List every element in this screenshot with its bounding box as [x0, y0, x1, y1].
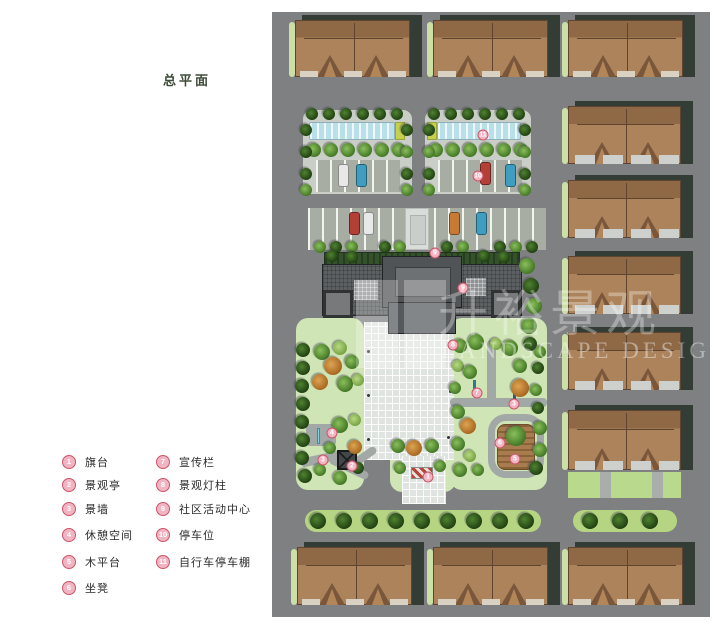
tree-icon — [336, 513, 352, 529]
house — [568, 106, 681, 164]
house-porch — [659, 461, 679, 470]
house-dormer — [501, 583, 527, 605]
legend-item: 6坐凳 — [62, 580, 109, 596]
tree-icon — [357, 108, 369, 120]
house-dormer — [319, 583, 345, 605]
house-porch — [390, 599, 408, 605]
tree-icon — [519, 184, 531, 196]
tree-icon — [324, 442, 336, 454]
house-porch — [346, 599, 364, 605]
legend-item-label: 坐凳 — [85, 580, 109, 596]
house-dormer — [590, 583, 616, 605]
house — [433, 20, 548, 77]
building-skylight — [466, 278, 486, 296]
house-porch — [631, 155, 651, 164]
house-dormer-facet — [366, 58, 386, 77]
tree-icon — [534, 346, 546, 358]
legend-item-label: 旗台 — [85, 454, 109, 470]
house-porch — [300, 71, 318, 77]
tree-icon — [460, 418, 476, 434]
tree-icon — [519, 168, 531, 180]
tree-icon — [449, 382, 461, 394]
house-dormer — [365, 583, 391, 605]
tree-icon — [423, 124, 435, 136]
tree-icon — [453, 463, 467, 477]
tree-icon — [358, 143, 372, 157]
tree-icon — [348, 440, 362, 454]
house-porch — [661, 71, 679, 77]
building-skylight — [354, 280, 378, 300]
house-porch — [438, 599, 456, 605]
tree-icon — [497, 143, 511, 157]
legend-item-label: 景观灯柱 — [179, 477, 227, 493]
legend-number-badge: 10 — [156, 528, 170, 542]
tree-icon — [324, 143, 338, 157]
tree-icon — [300, 168, 312, 180]
tree-icon — [519, 124, 531, 136]
tree-icon — [406, 440, 422, 456]
tree-icon — [478, 250, 490, 262]
tree-icon — [295, 379, 309, 393]
house-porch — [659, 229, 679, 238]
tree-icon — [296, 397, 310, 411]
tree-icon — [451, 405, 465, 419]
tree-icon — [446, 143, 460, 157]
tree-icon — [346, 251, 358, 263]
house-porch — [482, 599, 500, 605]
tree-icon — [388, 513, 404, 529]
house-porch — [603, 305, 623, 314]
tree-icon — [296, 433, 310, 447]
tree-icon — [529, 461, 543, 475]
house-ridge — [626, 183, 627, 237]
plan-marker-9: 9 — [458, 283, 469, 294]
plan-marker-9: 9 — [430, 248, 441, 259]
house-porch — [575, 155, 595, 164]
tree-icon — [519, 146, 531, 158]
car — [449, 212, 460, 235]
house-ridge — [626, 335, 627, 389]
legend-item: 3景墙 — [62, 501, 109, 517]
house-porch — [575, 305, 595, 314]
bicycle-shed — [309, 122, 395, 140]
house-dormer-facet — [320, 58, 340, 77]
tree-icon — [324, 357, 342, 375]
tree-icon — [533, 421, 547, 435]
page: 总平面 111099873465321 1旗台2景观亭3景墙4休憩空间5木平台6… — [0, 0, 720, 633]
tree-icon — [451, 437, 465, 451]
house-porch — [617, 71, 635, 77]
tree-icon — [513, 359, 527, 373]
plan-marker-8: 8 — [448, 340, 459, 351]
tree-icon — [464, 450, 476, 462]
house-dormer — [590, 55, 616, 77]
tree-icon — [612, 513, 628, 529]
legend-number-badge: 5 — [62, 555, 76, 569]
tree-icon — [296, 361, 310, 375]
entry-walkway — [405, 208, 429, 250]
plan-marker-6: 6 — [495, 438, 506, 449]
house-dormer-facet — [593, 58, 613, 77]
house — [568, 410, 681, 470]
tree-icon — [314, 464, 326, 476]
house — [295, 20, 410, 77]
legend-number-badge: 6 — [62, 581, 76, 595]
legend-item-label: 景观亭 — [85, 477, 121, 493]
tree-icon — [466, 513, 482, 529]
tree-icon — [300, 124, 312, 136]
house — [297, 547, 412, 605]
house-ridge — [626, 109, 627, 163]
house-porch — [603, 381, 623, 390]
plan-marker-1: 1 — [423, 472, 434, 483]
house-porch — [302, 599, 320, 605]
tree-icon — [337, 376, 353, 392]
central-plaza — [364, 322, 454, 460]
legend-item: 10停车位 — [156, 527, 215, 543]
house-porch — [573, 71, 591, 77]
tree-icon — [401, 168, 413, 180]
legend-item: 8景观灯柱 — [156, 477, 227, 493]
house-dormer-facet — [322, 586, 342, 605]
house-porch — [573, 599, 591, 605]
tree-icon — [341, 143, 355, 157]
tree-icon — [533, 443, 547, 457]
house-dormer-facet — [458, 586, 478, 605]
house-dormer — [455, 55, 481, 77]
tree-icon — [298, 469, 312, 483]
tree-icon — [526, 298, 542, 314]
tree-icon — [462, 108, 474, 120]
legend-item: 2景观亭 — [62, 477, 121, 493]
tree-icon — [463, 365, 477, 379]
tree-icon — [468, 334, 484, 350]
tree-icon — [440, 513, 456, 529]
house-dormer — [363, 55, 389, 77]
tree-icon — [352, 374, 364, 386]
tree-icon — [492, 513, 508, 529]
tree-icon — [423, 184, 435, 196]
legend-item-label: 自行车停车棚 — [179, 554, 251, 570]
tree-icon — [506, 426, 526, 446]
car — [476, 212, 487, 235]
building-center-roof — [395, 267, 451, 297]
tree-icon — [391, 439, 405, 453]
tree-icon — [496, 108, 508, 120]
tree-icon — [295, 451, 309, 465]
tree-icon — [423, 146, 435, 158]
house-dormer — [636, 55, 662, 77]
lamp-icon — [447, 436, 450, 439]
house-porch — [631, 381, 651, 390]
car — [349, 212, 360, 235]
legend-item-label: 社区活动中心 — [179, 501, 251, 517]
house-porch — [659, 155, 679, 164]
house-dormer-facet — [368, 586, 388, 605]
house-ridge — [627, 23, 628, 76]
tree-icon — [306, 108, 318, 120]
legend-item-label: 休憩空间 — [85, 527, 133, 543]
plan-marker-4: 4 — [327, 428, 338, 439]
plan-marker-10: 10 — [473, 171, 484, 182]
tree-icon — [490, 338, 502, 350]
legend-number-badge: 2 — [62, 478, 76, 492]
building-entry-wing — [388, 302, 456, 334]
house-dormer — [317, 55, 343, 77]
house-ridge — [627, 550, 628, 604]
house-porch — [388, 71, 406, 77]
legend-item: 11自行车停车棚 — [156, 554, 251, 570]
legend-number-badge: 3 — [62, 502, 76, 516]
house-porch — [575, 461, 595, 470]
tree-icon — [530, 384, 542, 396]
legend-item-label: 停车位 — [179, 527, 215, 543]
lamp-icon — [367, 394, 370, 397]
tree-icon — [362, 513, 378, 529]
tree-icon — [523, 278, 539, 294]
building-corner-pavilion — [323, 290, 353, 318]
legend-item: 4休憩空间 — [62, 527, 133, 543]
tree-icon — [521, 318, 537, 334]
house-dormer-facet — [504, 586, 524, 605]
house-dormer-facet — [593, 586, 613, 605]
tree-icon — [312, 374, 328, 390]
house — [433, 547, 548, 605]
lawn — [568, 472, 681, 498]
tree-icon — [300, 184, 312, 196]
tree-icon — [428, 108, 440, 120]
tree-icon — [480, 143, 494, 157]
tree-icon — [326, 250, 338, 262]
house-porch — [617, 599, 635, 605]
car — [505, 164, 516, 187]
tree-icon — [401, 184, 413, 196]
plan-marker-3: 3 — [318, 455, 329, 466]
house-porch — [603, 461, 623, 470]
house — [568, 20, 683, 77]
house — [568, 256, 681, 314]
house — [568, 547, 683, 605]
house-ridge — [356, 550, 357, 604]
building-corner-pavilion — [491, 290, 521, 318]
tree-icon — [463, 143, 477, 157]
tree-icon — [394, 462, 406, 474]
tree-icon — [345, 355, 359, 369]
entry-walkway-inner — [410, 215, 426, 245]
building-center-hall — [382, 256, 462, 308]
house-porch — [659, 381, 679, 390]
house-porch — [438, 71, 456, 77]
house-dormer — [636, 583, 662, 605]
tree-icon — [532, 362, 544, 374]
tree-icon — [340, 108, 352, 120]
tree-icon — [423, 168, 435, 180]
tree-icon — [434, 460, 446, 472]
legend-item: 1旗台 — [62, 454, 109, 470]
legend-item-label: 宣传栏 — [179, 454, 215, 470]
legend-item-label: 景墙 — [85, 501, 109, 517]
plan-title: 总平面 — [163, 70, 211, 89]
house-dormer-facet — [458, 58, 478, 77]
tree-icon — [374, 108, 386, 120]
car — [363, 212, 374, 235]
legend-number-badge: 8 — [156, 478, 170, 492]
lawn-path — [600, 472, 611, 498]
lawn-path — [652, 472, 663, 498]
tree-icon — [375, 143, 389, 157]
bench-icon — [317, 428, 320, 444]
tree-icon — [296, 343, 310, 357]
house-porch — [482, 71, 500, 77]
legend-number-badge: 7 — [156, 455, 170, 469]
tree-icon — [642, 513, 658, 529]
lamp-icon — [367, 350, 370, 353]
house-dormer — [501, 55, 527, 77]
house-porch — [575, 381, 595, 390]
house-dormer-facet — [639, 586, 659, 605]
plan-marker-3: 3 — [509, 399, 520, 410]
legend-item: 9社区活动中心 — [156, 501, 251, 517]
house-porch — [603, 155, 623, 164]
house — [568, 180, 681, 238]
tree-icon — [333, 471, 347, 485]
house-ridge — [626, 413, 627, 469]
tree-icon — [518, 513, 534, 529]
tree-icon — [519, 258, 535, 274]
house — [568, 332, 681, 390]
tree-icon — [349, 414, 361, 426]
house-porch — [659, 305, 679, 314]
tree-icon — [526, 241, 538, 253]
tree-icon — [323, 108, 335, 120]
house-porch — [526, 599, 544, 605]
car — [338, 164, 349, 187]
tree-icon — [532, 402, 544, 414]
tree-icon — [502, 340, 518, 356]
plan-marker-7: 7 — [472, 388, 483, 399]
legend-item-label: 木平台 — [85, 554, 121, 570]
house-porch — [344, 71, 362, 77]
tree-icon — [401, 146, 413, 158]
house-ridge — [492, 23, 493, 76]
tree-icon — [513, 108, 525, 120]
house-porch — [603, 229, 623, 238]
plan-marker-5: 5 — [510, 454, 521, 465]
legend-item: 5木平台 — [62, 554, 121, 570]
tree-icon — [391, 108, 403, 120]
plan-marker-2: 2 — [347, 461, 358, 472]
house-porch — [575, 229, 595, 238]
tree-icon — [472, 464, 484, 476]
house-ridge — [626, 259, 627, 313]
house-dormer-facet — [504, 58, 524, 77]
house-porch — [526, 71, 544, 77]
legend-number-badge: 4 — [62, 528, 76, 542]
legend-number-badge: 9 — [156, 502, 170, 516]
house-porch — [631, 229, 651, 238]
tree-icon — [445, 108, 457, 120]
legend-item: 7宣传栏 — [156, 454, 215, 470]
house-porch — [631, 461, 651, 470]
plan-marker-11: 11 — [478, 130, 489, 141]
legend-number-badge: 1 — [62, 455, 76, 469]
tree-icon — [414, 513, 430, 529]
tree-icon — [498, 251, 510, 263]
tree-icon — [582, 513, 598, 529]
house-ridge — [492, 550, 493, 604]
tree-icon — [333, 341, 347, 355]
legend-number-badge: 11 — [156, 555, 170, 569]
house-dormer — [455, 583, 481, 605]
house-ridge — [354, 23, 355, 76]
tree-icon — [310, 513, 326, 529]
site-plan: 111099873465321 — [272, 12, 710, 617]
tree-icon — [425, 439, 439, 453]
tree-icon — [511, 379, 529, 397]
tree-icon — [300, 146, 312, 158]
house-porch — [661, 599, 679, 605]
tree-icon — [479, 108, 491, 120]
car — [356, 164, 367, 187]
house-dormer-facet — [639, 58, 659, 77]
tree-icon — [401, 124, 413, 136]
lamp-icon — [367, 438, 370, 441]
tree-icon — [295, 415, 309, 429]
house-porch — [631, 305, 651, 314]
